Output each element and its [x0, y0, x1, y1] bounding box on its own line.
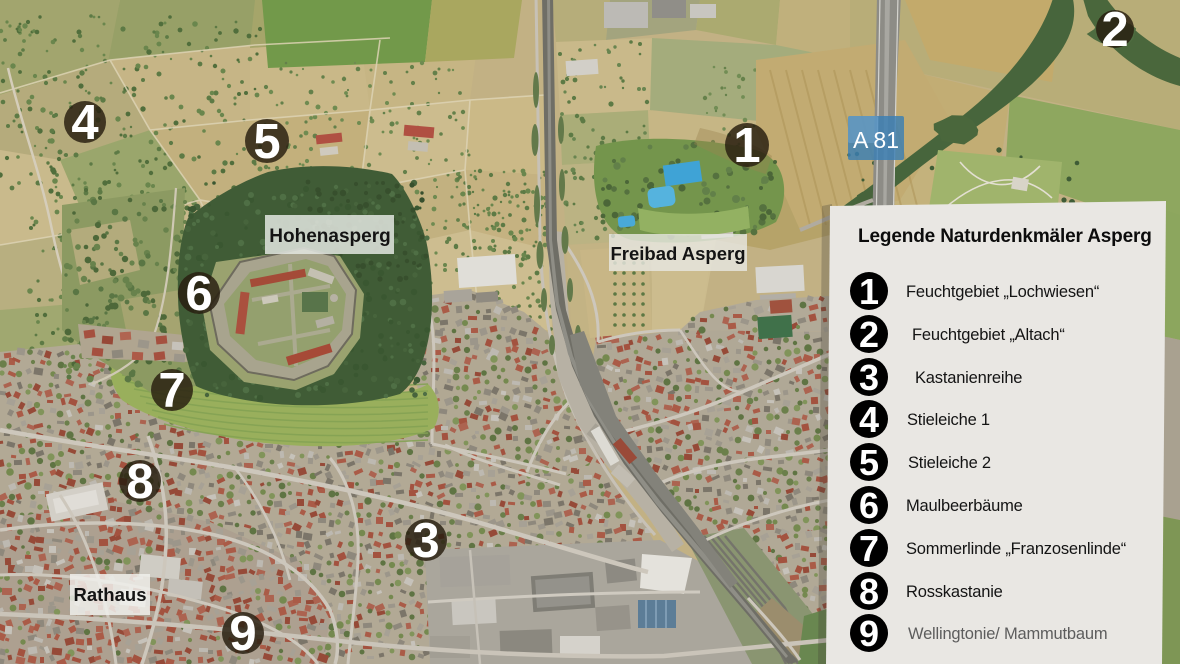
- svg-text:6: 6: [859, 485, 879, 526]
- svg-text:7: 7: [158, 364, 185, 418]
- svg-text:4: 4: [859, 399, 879, 440]
- svg-text:7: 7: [859, 528, 879, 569]
- svg-text:Feuchtgebiet „Altach“: Feuchtgebiet „Altach“: [912, 326, 1065, 344]
- svg-text:2: 2: [859, 314, 879, 355]
- svg-text:Freibad Asperg: Freibad Asperg: [610, 243, 745, 264]
- svg-text:Kastanienreihe: Kastanienreihe: [915, 369, 1022, 387]
- svg-text:Stieleiche 1: Stieleiche 1: [907, 411, 990, 429]
- svg-text:Rathaus: Rathaus: [74, 584, 147, 605]
- svg-text:Hohenasperg: Hohenasperg: [269, 226, 390, 247]
- svg-text:5: 5: [859, 442, 879, 483]
- svg-text:2: 2: [1101, 3, 1128, 57]
- svg-text:1: 1: [733, 119, 760, 173]
- svg-text:Wellingtonie/ Mammutbaum: Wellingtonie/ Mammutbaum: [908, 625, 1107, 643]
- svg-text:A 81: A 81: [853, 127, 899, 153]
- svg-text:8: 8: [859, 571, 879, 612]
- svg-text:8: 8: [126, 455, 153, 509]
- svg-text:Maulbeerbäume: Maulbeerbäume: [906, 497, 1023, 515]
- svg-text:Rosskastanie: Rosskastanie: [906, 583, 1003, 601]
- svg-text:3: 3: [859, 357, 879, 398]
- svg-text:Sommerlinde „Franzosenlinde“: Sommerlinde „Franzosenlinde“: [906, 540, 1126, 558]
- svg-text:6: 6: [185, 267, 212, 321]
- svg-text:Feuchtgebiet „Lochwiesen“: Feuchtgebiet „Lochwiesen“: [906, 283, 1099, 301]
- svg-text:3: 3: [412, 514, 439, 568]
- svg-text:4: 4: [71, 96, 98, 150]
- svg-text:Stieleiche 2: Stieleiche 2: [908, 454, 991, 472]
- svg-text:1: 1: [859, 271, 879, 312]
- svg-text:9: 9: [859, 613, 879, 654]
- svg-text:Legende Naturdenkmäler Asperg: Legende Naturdenkmäler Asperg: [858, 226, 1152, 247]
- svg-text:9: 9: [229, 607, 256, 661]
- svg-text:5: 5: [253, 115, 280, 169]
